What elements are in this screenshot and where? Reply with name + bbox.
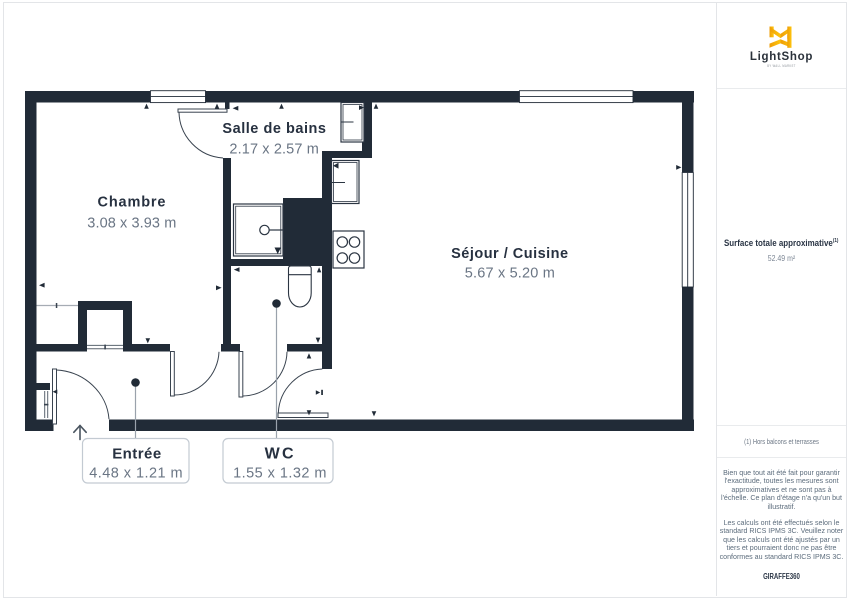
svg-text:5.67 x 5.20 m: 5.67 x 5.20 m — [465, 266, 555, 282]
svg-text:WC: WC — [265, 446, 294, 463]
svg-text:4.48 x 1.21 m: 4.48 x 1.21 m — [89, 465, 182, 481]
svg-text:1.55 x 1.32 m: 1.55 x 1.32 m — [233, 465, 326, 481]
svg-text:3.08 x 3.93 m: 3.08 x 3.93 m — [87, 216, 176, 232]
svg-text:Chambre: Chambre — [98, 195, 166, 211]
svg-text:2.17 x 2.57 m: 2.17 x 2.57 m — [229, 142, 318, 158]
svg-text:Entrée: Entrée — [112, 446, 161, 463]
svg-text:Séjour / Cuisine: Séjour / Cuisine — [451, 246, 568, 262]
svg-text:Salle de bains: Salle de bains — [222, 121, 326, 137]
